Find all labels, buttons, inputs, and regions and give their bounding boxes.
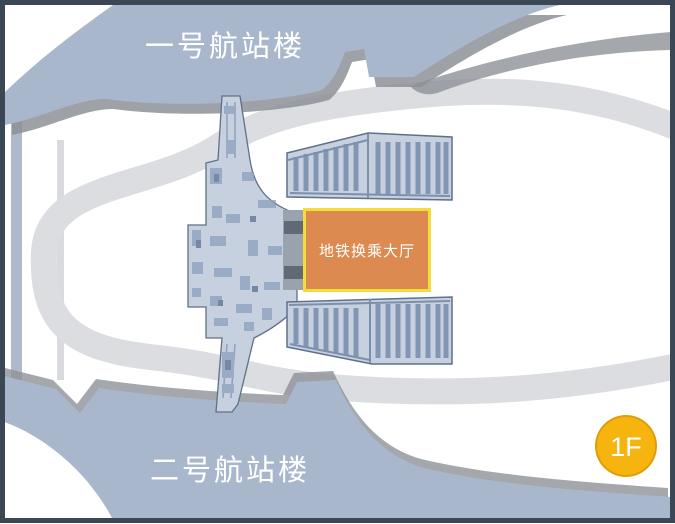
metro-hall-wall — [283, 210, 306, 290]
metro-hall-label: 地铁换乘大厅 — [319, 243, 415, 260]
floor-badge-label: 1F — [610, 432, 642, 462]
floor-badge[interactable]: 1F — [595, 415, 657, 477]
metro-hall-overlay[interactable]: 地铁换乘大厅 — [303, 208, 431, 292]
left-corridor-stripe — [11, 118, 22, 380]
airport-floor-map: 一号航站楼 二号航站楼 — [0, 0, 675, 524]
terminal1-label: 一号航站楼 — [145, 30, 305, 63]
left-side-road-stripe — [57, 140, 64, 380]
terminal2-label: 二号航站楼 — [150, 454, 310, 487]
